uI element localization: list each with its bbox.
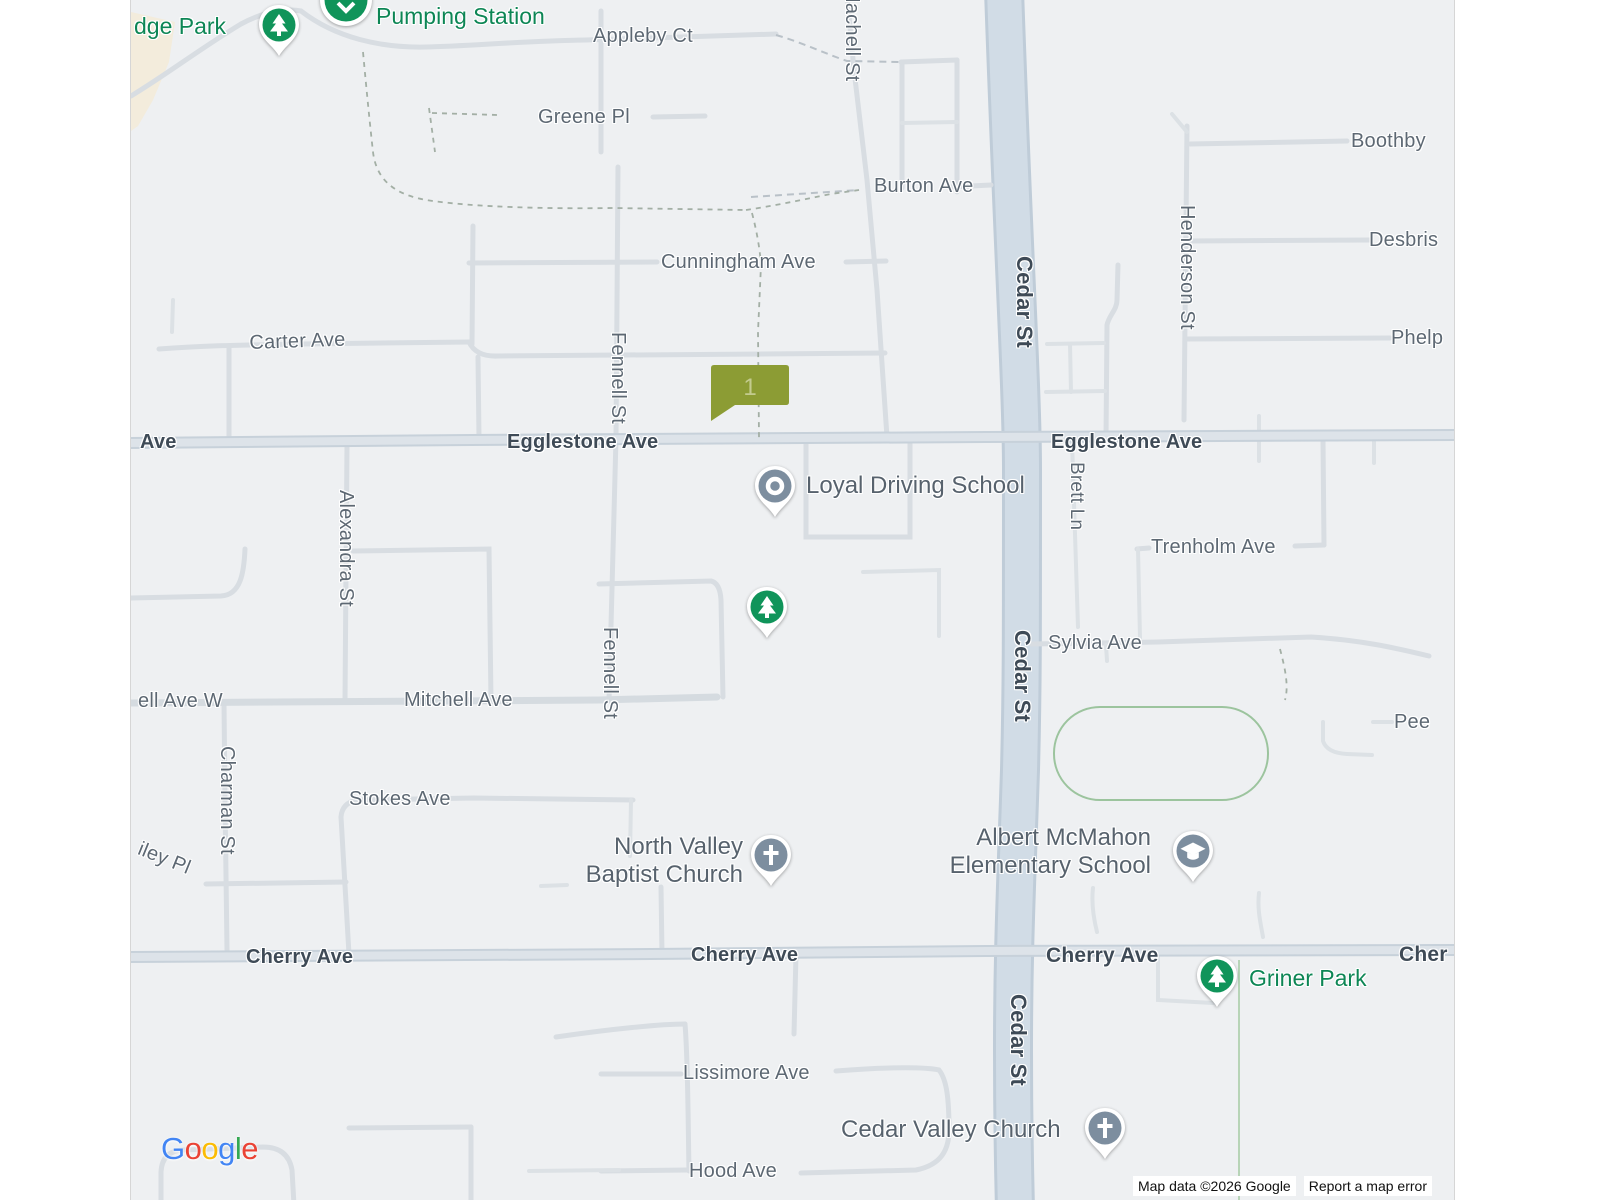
street-label-hood-ave: Hood Ave: [689, 1160, 777, 1183]
street-label-mitchell-ave: Mitchell Ave: [404, 689, 513, 712]
street-label-ell-ave-w: ell Ave W: [138, 690, 223, 713]
loyal-driving-school-pin-dot-icon[interactable]: [751, 464, 799, 518]
poi-label-pumping-station[interactable]: Pumping Station: [376, 2, 545, 30]
street-label-egglestone-ave: Egglestone Ave: [507, 431, 658, 454]
albert-mcmahon-school-pin-school-icon[interactable]: [1169, 829, 1217, 883]
google-logo[interactable]: Google: [161, 1131, 258, 1167]
poi-label-edge-park[interactable]: dge Park: [134, 12, 226, 40]
street-label-pee: Pee: [1394, 711, 1430, 734]
street-label-egglestone-ave: Egglestone Ave: [1051, 431, 1202, 454]
cedar-valley-church-pin-church-icon[interactable]: [1081, 1106, 1129, 1160]
google-logo-letter: e: [241, 1131, 258, 1166]
poi-label-albert-mcmahon-elementary-school[interactable]: Albert McMahonElementary School: [950, 824, 1151, 880]
street-label-cherry-ave: Cherry Ave: [1046, 944, 1159, 968]
street-label-fennell-st: Fennell St: [606, 332, 629, 424]
street-label-sylvia-ave: Sylvia Ave: [1048, 632, 1142, 655]
street-label-cedar-st: Cedar St: [1005, 994, 1031, 1086]
edge-park-pin-park-icon[interactable]: [255, 3, 303, 57]
street-label-stokes-ave: Stokes Ave: [349, 788, 451, 811]
trail-paths: [363, 35, 1287, 700]
street-label-henderson-st: Henderson St: [1175, 205, 1198, 330]
report-map-error-link[interactable]: Report a map error: [1304, 1176, 1432, 1196]
griner-park-pin-park-icon[interactable]: [1193, 954, 1241, 1008]
street-label-carter-ave: Carter Ave: [249, 329, 346, 355]
street-label-cedar-st: Cedar St: [1011, 256, 1037, 348]
svg-text:1: 1: [743, 374, 756, 401]
street-label-cunningham-ave: Cunningham Ave: [661, 251, 816, 274]
street-label-machell-st: Machell St: [840, 0, 863, 81]
street-label-cher: Cher: [1399, 943, 1448, 967]
street-label-brett-ln: Brett Ln: [1065, 462, 1087, 530]
street-label-fennell-st: Fennell St: [598, 627, 621, 719]
street-label-boothby: Boothby: [1351, 130, 1426, 153]
map-attribution: Map data ©2026 Google Report a map error: [1133, 1176, 1432, 1196]
street-label-ave: Ave: [140, 431, 177, 454]
north-valley-baptist-church-pin-church-icon[interactable]: [747, 833, 795, 887]
poi-label-griner-park[interactable]: Griner Park: [1249, 964, 1367, 992]
poi-label-loyal-driving-school[interactable]: Loyal Driving School: [806, 472, 1025, 500]
map-roads: [131, 0, 1454, 1200]
street-label-desbris: Desbris: [1369, 229, 1438, 252]
street-label-burton-ave: Burton Ave: [874, 175, 973, 198]
street-label-alexandra-st: Alexandra St: [334, 490, 357, 607]
street-label-lissimore-ave: Lissimore Ave: [683, 1062, 810, 1085]
pumping-station-pin-pumping-icon[interactable]: [319, 0, 367, 27]
google-logo-letter: g: [218, 1131, 235, 1166]
park-pin-park-icon[interactable]: [743, 585, 791, 639]
street-label-appleby-ct: Appleby Ct: [593, 25, 693, 48]
street-label-greene-pl: Greene Pl: [538, 106, 630, 129]
google-logo-letter: G: [161, 1131, 185, 1166]
poi-label-north-valley-baptist-church[interactable]: North ValleyBaptist Church: [586, 833, 743, 889]
street-label-charman-st: Charman St: [215, 746, 238, 855]
poi-label-cedar-valley-church[interactable]: Cedar Valley Church: [841, 1116, 1061, 1144]
street-label-cherry-ave: Cherry Ave: [246, 946, 353, 969]
result-marker-1[interactable]: 1: [708, 362, 798, 429]
street-label-cherry-ave: Cherry Ave: [691, 944, 798, 967]
park-boundary: [1054, 707, 1268, 800]
google-logo-letter: o: [201, 1131, 218, 1166]
map-data-text: Map data ©2026 Google: [1133, 1176, 1296, 1196]
map-canvas[interactable]: Appleby CtGreene PlMachell StBurton AveC…: [130, 0, 1455, 1200]
google-logo-letter: o: [185, 1131, 202, 1166]
street-label-cedar-st: Cedar St: [1009, 630, 1035, 722]
street-label-phelp: Phelp: [1391, 327, 1443, 350]
street-label-trenholm-ave: Trenholm Ave: [1151, 536, 1276, 559]
